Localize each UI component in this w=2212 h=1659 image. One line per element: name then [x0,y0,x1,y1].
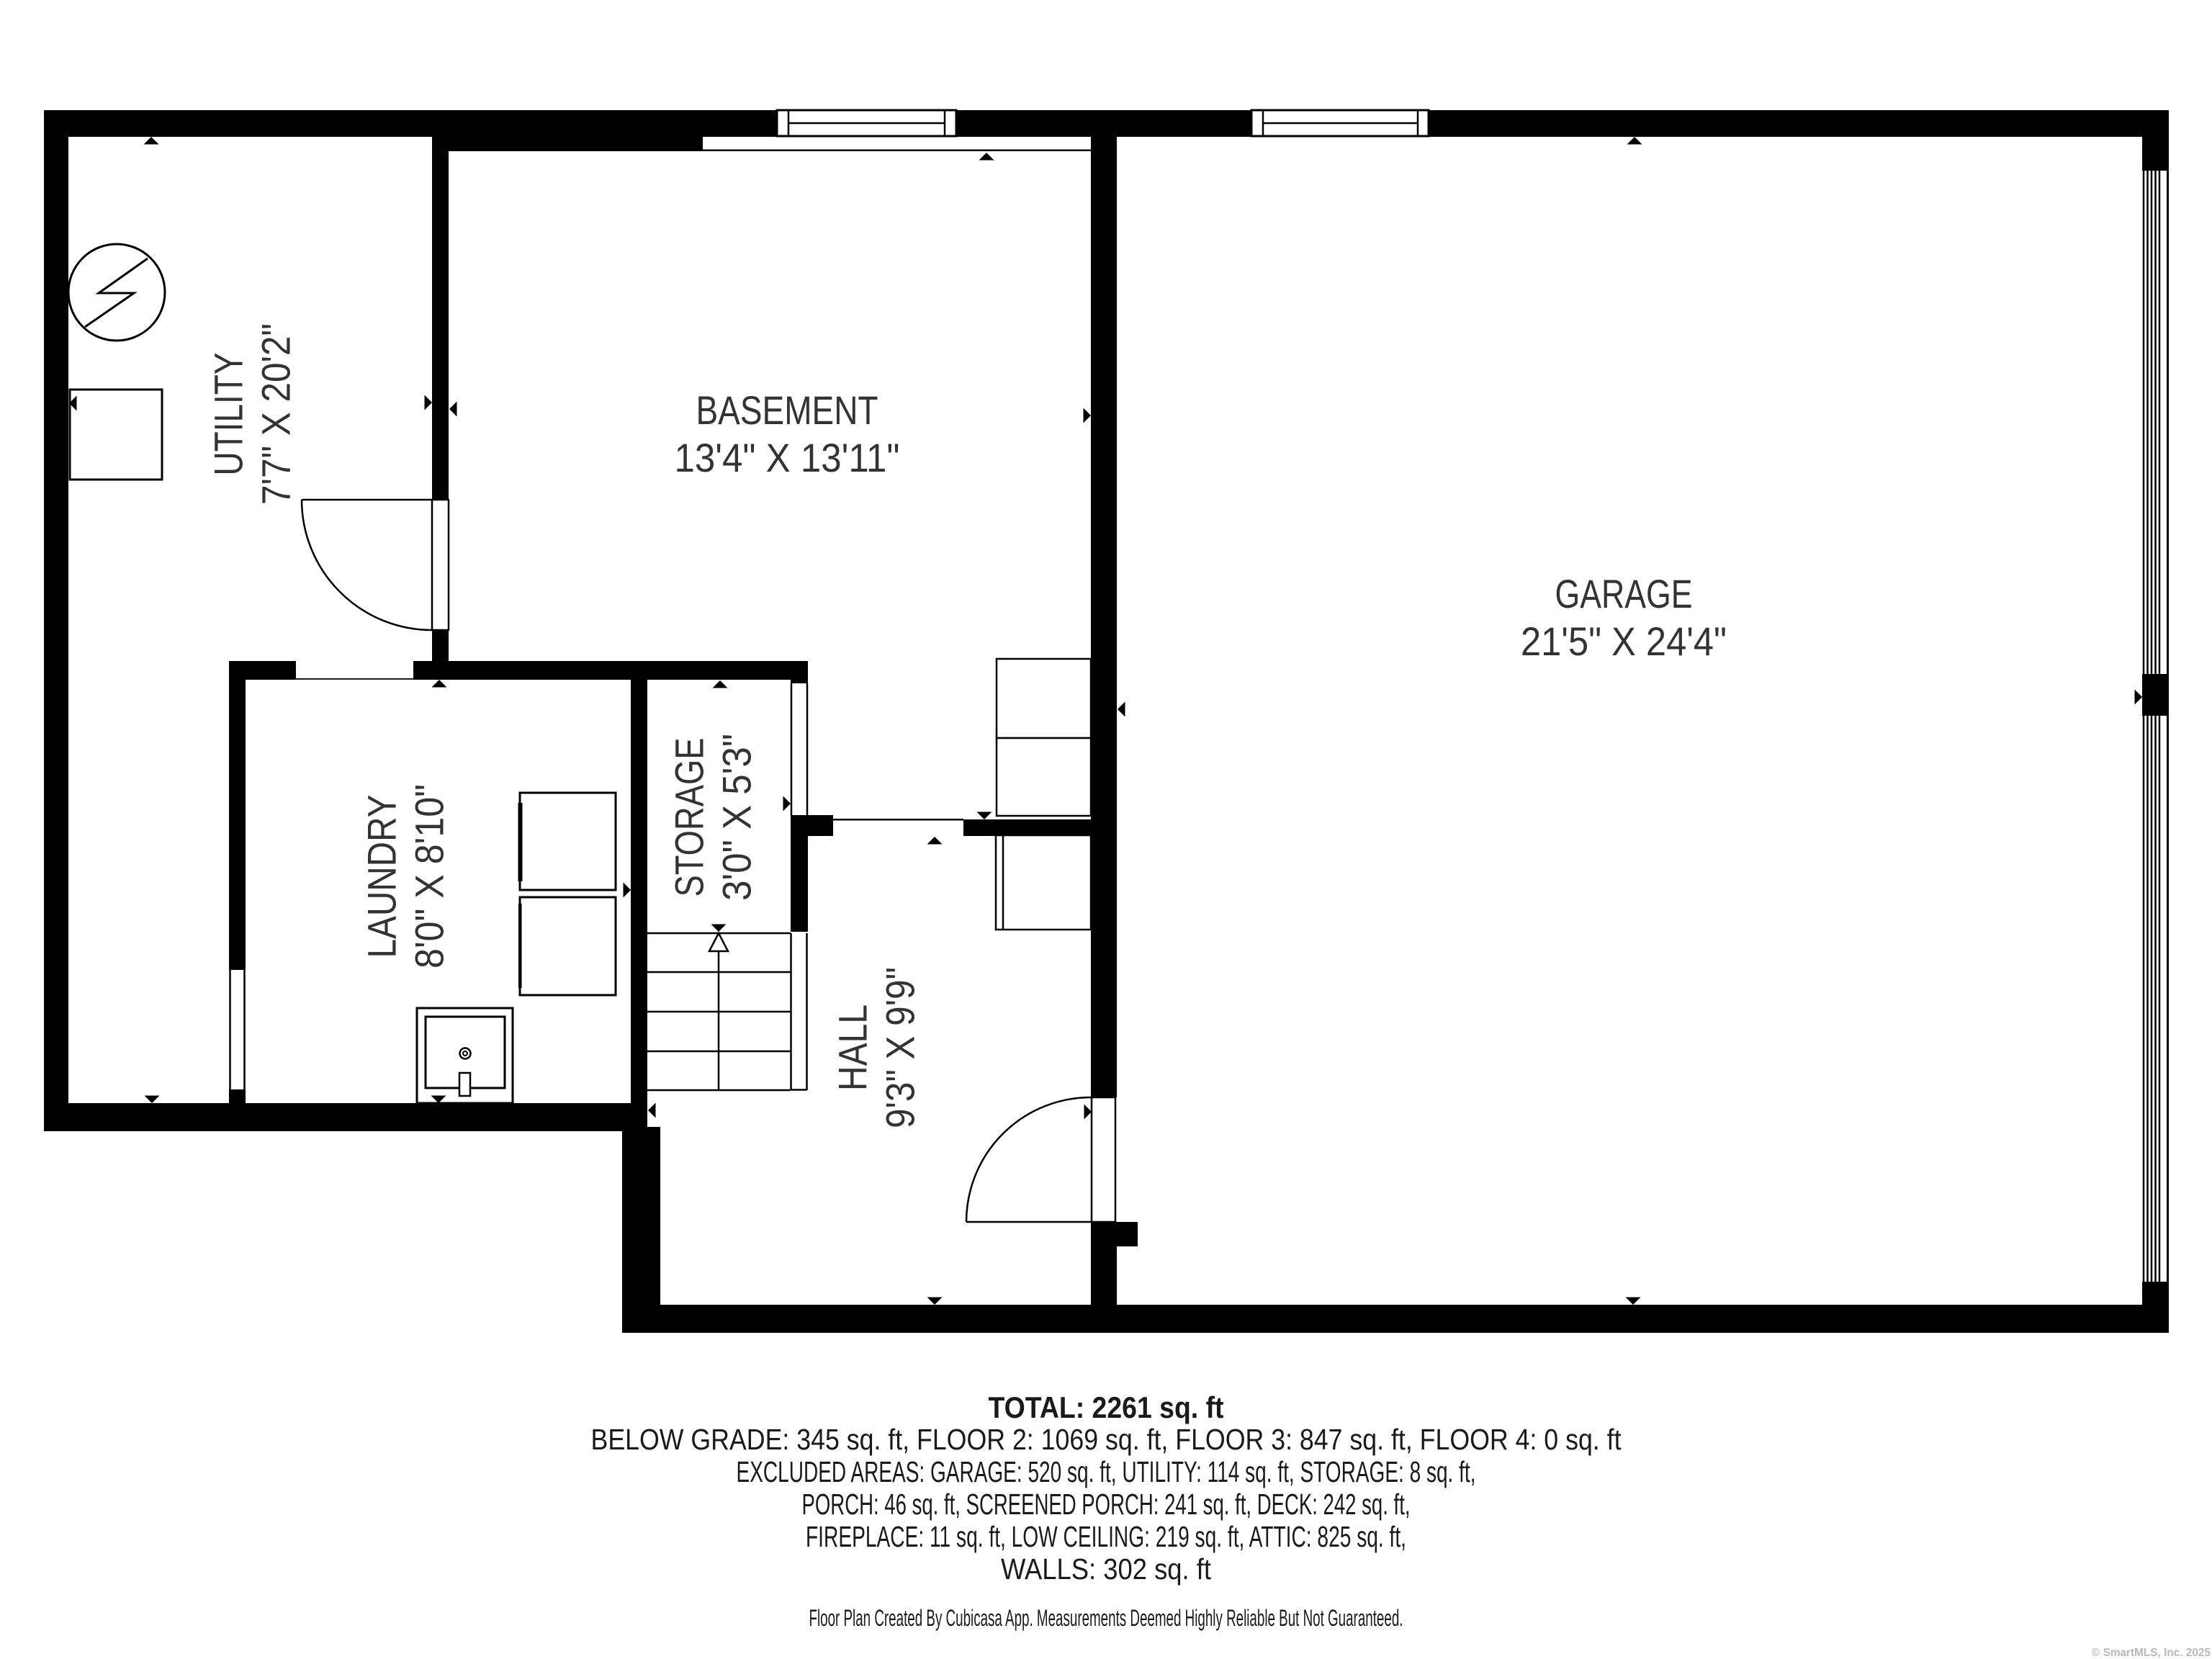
svg-text:TOTAL: 2261 sq. ft: TOTAL: 2261 sq. ft [989,1390,1224,1424]
svg-text:9'3" X 9'9": 9'3" X 9'9" [878,967,923,1128]
svg-text:© SmartMLS, Inc. 2025: © SmartMLS, Inc. 2025 [2092,1647,2211,1659]
svg-text:8'0" X 8'10": 8'0" X 8'10" [407,784,452,968]
svg-text:7'7" X 20'2": 7'7" X 20'2" [253,323,299,505]
svg-text:3'0" X 5'3": 3'0" X 5'3" [714,734,760,901]
svg-text:LAUNDRY: LAUNDRY [359,795,405,958]
svg-text:EXCLUDED AREAS: GARAGE: 520 sq: EXCLUDED AREAS: GARAGE: 520 sq. ft, UTIL… [737,1455,1476,1488]
svg-text:WALLS: 302 sq. ft: WALLS: 302 sq. ft [1001,1552,1212,1586]
svg-text:21'5" X 24'4": 21'5" X 24'4" [1521,619,1727,664]
svg-text:BELOW GRADE: 345 sq. ft, FLOOR: BELOW GRADE: 345 sq. ft, FLOOR 2: 1069 s… [591,1423,1622,1456]
svg-text:PORCH: 46 sq. ft, SCREENED POR: PORCH: 46 sq. ft, SCREENED PORCH: 241 sq… [802,1488,1411,1521]
svg-text:HALL: HALL [830,1004,876,1091]
svg-text:Floor Plan Created By Cubicasa: Floor Plan Created By Cubicasa App. Meas… [809,1605,1403,1631]
svg-text:UTILITY: UTILITY [206,353,251,476]
svg-text:FIREPLACE: 11 sq. ft, LOW CEIL: FIREPLACE: 11 sq. ft, LOW CEILING: 219 s… [806,1520,1406,1553]
svg-text:STORAGE: STORAGE [667,738,712,897]
svg-text:BASEMENT: BASEMENT [696,387,878,433]
svg-text:13'4" X 13'11": 13'4" X 13'11" [675,435,900,480]
svg-text:GARAGE: GARAGE [1555,571,1693,616]
